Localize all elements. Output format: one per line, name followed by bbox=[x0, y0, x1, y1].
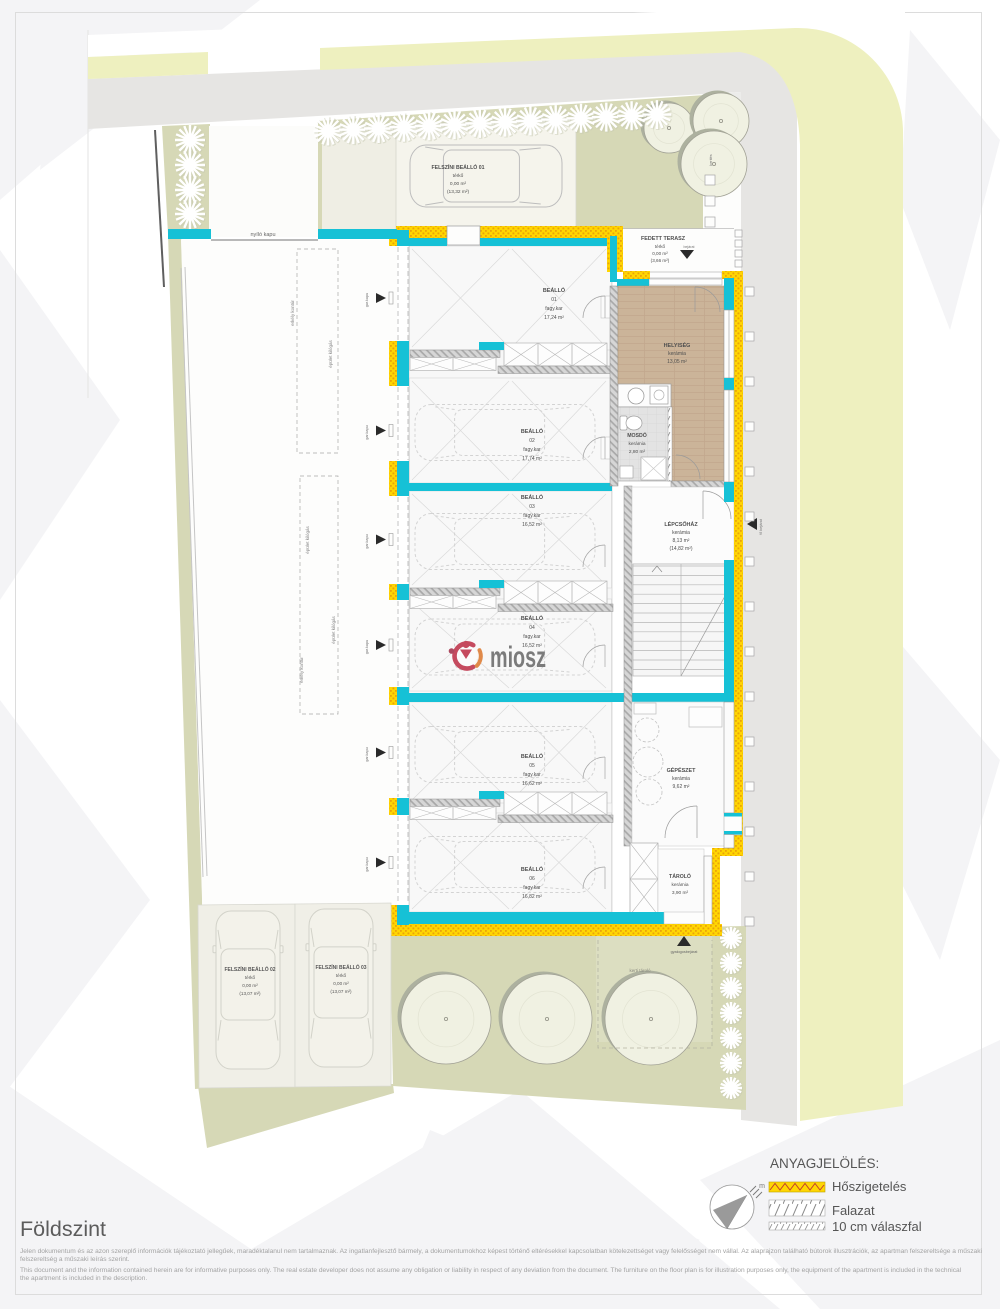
svg-text:(13,32 m²): (13,32 m²) bbox=[447, 189, 470, 195]
svg-text:gar.kapu: gar.kapu bbox=[365, 747, 369, 762]
svg-text:LÉPCSŐHÁZ: LÉPCSŐHÁZ bbox=[664, 520, 698, 528]
svg-text:BEÁLLÓ: BEÁLLÓ bbox=[521, 865, 543, 873]
svg-text:(3,66 m²): (3,66 m²) bbox=[651, 258, 670, 263]
svg-text:gar.kapu: gar.kapu bbox=[365, 534, 369, 549]
svg-text:kerámia: kerámia bbox=[628, 441, 645, 447]
svg-text:Hőszigetelés: Hőszigetelés bbox=[832, 1179, 907, 1194]
svg-text:kerámia: kerámia bbox=[672, 530, 690, 536]
svg-text:01: 01 bbox=[551, 297, 557, 303]
svg-text:the apartment is included in t: the apartment is included in the descrip… bbox=[20, 1275, 147, 1282]
svg-text:Falazat: Falazat bbox=[832, 1203, 875, 1218]
svg-text:kerámia: kerámia bbox=[668, 351, 686, 357]
svg-text:8,13 m²: 8,13 m² bbox=[673, 538, 690, 544]
svg-text:bejárat: bejárat bbox=[684, 245, 695, 249]
svg-text:16,62 m²: 16,62 m² bbox=[522, 781, 542, 787]
svg-text:GÉPÉSZET: GÉPÉSZET bbox=[667, 766, 696, 774]
svg-text:BEÁLLÓ: BEÁLLÓ bbox=[543, 286, 565, 294]
svg-text:BEÁLLÓ: BEÁLLÓ bbox=[521, 614, 543, 622]
svg-text:16,82 m²: 16,82 m² bbox=[522, 894, 542, 900]
svg-text:FELSZÍNI BEÁLLÓ 01: FELSZÍNI BEÁLLÓ 01 bbox=[431, 163, 484, 171]
svg-text:térkő: térkő bbox=[453, 173, 464, 179]
svg-text:felszereltség a műszaki leírás: felszereltség a műszaki leírás szerint. bbox=[20, 1256, 130, 1263]
svg-text:17,74 m²: 17,74 m² bbox=[522, 456, 542, 462]
svg-text:fagy.kar: fagy.kar bbox=[545, 306, 563, 312]
svg-text:kerámia: kerámia bbox=[672, 776, 690, 782]
svg-text:gar.kapu: gar.kapu bbox=[365, 857, 369, 872]
svg-text:0,00 m²: 0,00 m² bbox=[242, 983, 258, 988]
svg-text:erkély kontúr: erkély kontúr bbox=[299, 657, 304, 683]
svg-text:FELSZÍNI BEÁLLÓ 03: FELSZÍNI BEÁLLÓ 03 bbox=[315, 963, 366, 971]
svg-text:kerítés: kerítés bbox=[709, 154, 713, 165]
svg-text:This document and the informat: This document and the information contai… bbox=[20, 1267, 962, 1274]
svg-text:02: 02 bbox=[529, 438, 535, 444]
svg-text:05: 05 bbox=[529, 763, 535, 769]
svg-text:gar.kapu: gar.kapu bbox=[365, 425, 369, 440]
svg-text:(14,82 m²): (14,82 m²) bbox=[669, 546, 692, 552]
svg-text:Földszint: Földszint bbox=[20, 1217, 106, 1241]
svg-text:fagy.kar: fagy.kar bbox=[523, 772, 541, 778]
svg-text:TÁROLÓ: TÁROLÓ bbox=[669, 872, 691, 880]
svg-text:fagy.kar: fagy.kar bbox=[523, 447, 541, 453]
svg-text:erkély kontúr: erkély kontúr bbox=[290, 300, 295, 326]
svg-text:0,00 m²: 0,00 m² bbox=[333, 981, 349, 986]
svg-text:m: m bbox=[759, 1183, 765, 1190]
svg-text:2,80 m²: 2,80 m² bbox=[629, 449, 646, 455]
svg-text:épület kilógás: épület kilógás bbox=[328, 339, 333, 367]
svg-text:(13,07 m²): (13,07 m²) bbox=[239, 991, 261, 996]
svg-text:HELYISÉG: HELYISÉG bbox=[664, 341, 691, 349]
svg-text:(13,07 m²): (13,07 m²) bbox=[330, 989, 352, 994]
svg-text:17,24 m²: 17,24 m² bbox=[544, 315, 564, 321]
svg-text:kerti tároló: kerti tároló bbox=[629, 968, 651, 973]
svg-text:MOSDÓ: MOSDÓ bbox=[627, 431, 647, 439]
svg-text:10 cm válaszfal: 10 cm válaszfal bbox=[832, 1219, 922, 1234]
svg-text:gyalogosbejárat: gyalogosbejárat bbox=[671, 950, 699, 954]
svg-text:térkő: térkő bbox=[245, 975, 256, 980]
svg-text:BEÁLLÓ: BEÁLLÓ bbox=[521, 752, 543, 760]
svg-text:BEÁLLÓ: BEÁLLÓ bbox=[521, 493, 543, 501]
svg-text:Jelen dokumentum és az azon sz: Jelen dokumentum és az azon szereplő inf… bbox=[20, 1248, 983, 1255]
svg-text:06: 06 bbox=[529, 876, 535, 882]
svg-text:fő bejárat: fő bejárat bbox=[759, 518, 763, 535]
svg-text:gar.kapu: gar.kapu bbox=[365, 640, 369, 655]
svg-text:térkő: térkő bbox=[336, 973, 347, 978]
svg-text:nyíló kapu: nyíló kapu bbox=[250, 232, 275, 238]
svg-text:0,00 m²: 0,00 m² bbox=[450, 181, 467, 187]
svg-text:BEÁLLÓ: BEÁLLÓ bbox=[521, 427, 543, 435]
svg-text:kerámia: kerámia bbox=[671, 882, 688, 888]
svg-text:13,05 m²: 13,05 m² bbox=[667, 359, 687, 365]
svg-text:3,90 m²: 3,90 m² bbox=[672, 890, 689, 896]
svg-text:fagy.kar: fagy.kar bbox=[523, 634, 541, 640]
svg-text:térkő: térkő bbox=[655, 244, 666, 249]
svg-text:16,52 m²: 16,52 m² bbox=[522, 522, 542, 528]
svg-text:0,00 m²: 0,00 m² bbox=[652, 251, 668, 256]
svg-text:fagy.kar: fagy.kar bbox=[523, 513, 541, 519]
svg-text:FEDETT TERASZ: FEDETT TERASZ bbox=[641, 236, 686, 242]
svg-text:fagy.kar: fagy.kar bbox=[523, 885, 541, 891]
svg-text:FELSZÍNI BEÁLLÓ 02: FELSZÍNI BEÁLLÓ 02 bbox=[224, 965, 275, 973]
svg-text:ANYAGJELÖLÉS:: ANYAGJELÖLÉS: bbox=[770, 1156, 879, 1171]
svg-text:épület kilógás: épület kilógás bbox=[305, 525, 310, 553]
svg-text:03: 03 bbox=[529, 504, 535, 510]
svg-text:miosz: miosz bbox=[490, 641, 546, 674]
svg-text:04: 04 bbox=[529, 625, 535, 631]
svg-text:gar.kapu: gar.kapu bbox=[365, 293, 369, 308]
svg-text:épület kilógás: épület kilógás bbox=[331, 615, 336, 643]
svg-text:9,62 m²: 9,62 m² bbox=[673, 784, 690, 790]
